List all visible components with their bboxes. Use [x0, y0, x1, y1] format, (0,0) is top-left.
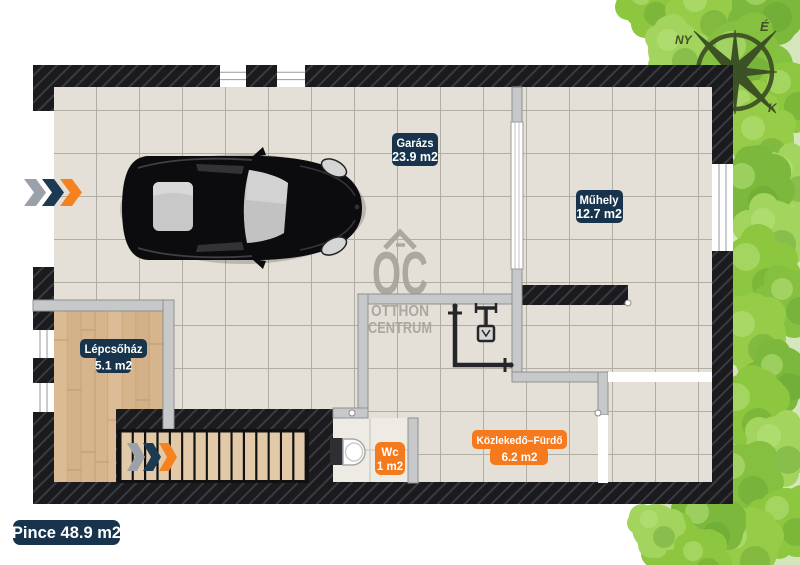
svg-text:Lépcsőház: Lépcsőház	[85, 342, 143, 356]
svg-text:23.9 m2: 23.9 m2	[392, 150, 438, 164]
svg-text:K: K	[768, 101, 778, 115]
svg-text:5.1 m2: 5.1 m2	[95, 359, 133, 373]
svg-text:12.7 m2: 12.7 m2	[576, 207, 622, 221]
svg-text:NY: NY	[675, 33, 693, 47]
svg-text:Wc: Wc	[381, 447, 399, 459]
svg-text:Garázs: Garázs	[397, 136, 434, 150]
svg-text:OTTHON: OTTHON	[371, 303, 429, 320]
svg-text:CENTRUM: CENTRUM	[368, 320, 432, 337]
svg-text:Pince 48.9 m2: Pince 48.9 m2	[12, 524, 121, 542]
svg-text:É: É	[760, 19, 769, 34]
svg-text:Közlekedő–Fürdő: Közlekedő–Fürdő	[477, 435, 563, 447]
svg-text:6.2 m2: 6.2 m2	[502, 452, 538, 464]
svg-text:Műhely: Műhely	[580, 193, 619, 207]
svg-text:1 m2: 1 m2	[377, 461, 403, 473]
